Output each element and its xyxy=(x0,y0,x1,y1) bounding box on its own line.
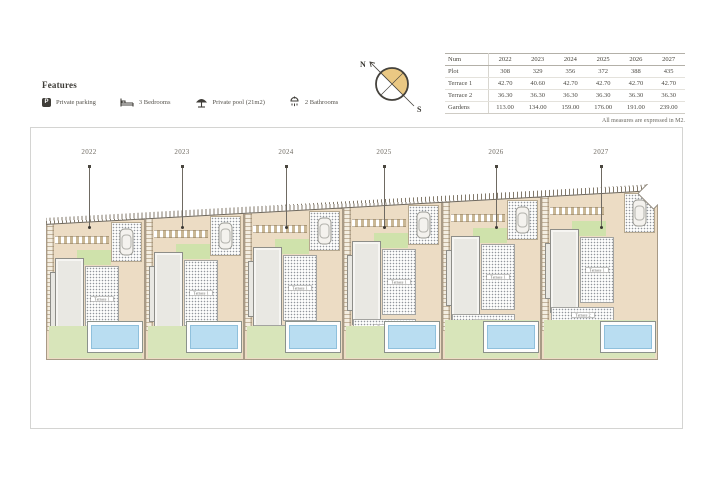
house-footprint xyxy=(352,241,381,325)
units-note: All measures are expressed in M2. xyxy=(445,118,685,124)
parking-pad xyxy=(408,205,439,245)
terrace-1-area: Terrace 1 xyxy=(184,260,218,326)
value-cell: 113.00 xyxy=(489,102,522,114)
pool xyxy=(483,321,539,353)
value-cell: 191.00 xyxy=(620,102,653,114)
plot-2025: Terrace 1Terrace 2 xyxy=(343,202,442,360)
pool xyxy=(384,321,440,353)
value-cell: 40.60 xyxy=(521,78,554,90)
value-cell: 176.00 xyxy=(587,102,620,114)
row-label-cell: Gardens xyxy=(445,102,489,114)
pergola-strip xyxy=(550,207,604,215)
value-cell: 372 xyxy=(587,66,620,78)
parking-pad xyxy=(210,216,241,256)
pergola-strip xyxy=(55,236,109,244)
bathroom-icon xyxy=(289,96,300,108)
leader-line xyxy=(182,168,183,227)
leader-dot xyxy=(285,226,288,229)
terrace-1-label: Terrace 1 xyxy=(190,290,213,296)
leader-line xyxy=(496,168,497,227)
value-cell: 42.70 xyxy=(652,78,685,90)
pergola-strip xyxy=(154,230,208,238)
plot-2023: Terrace 1Terrace 2 xyxy=(145,213,244,360)
house-footprint xyxy=(253,247,282,331)
leader-dot xyxy=(600,226,603,229)
pool xyxy=(186,321,242,353)
pool xyxy=(87,321,143,353)
site-plan-band: Terrace 1Terrace 2Terrace 1Terrace 2Terr… xyxy=(46,184,658,366)
plot-label: 2023 xyxy=(162,148,202,156)
value-cell: 388 xyxy=(620,66,653,78)
pergola-strip xyxy=(253,225,307,233)
table-row: Terrace 236.3036.3036.3036.3036.3036.30 xyxy=(445,90,685,102)
leader-line xyxy=(601,168,602,227)
pool-water xyxy=(91,325,139,349)
drawing-frame: Terrace 1Terrace 2Terrace 1Terrace 2Terr… xyxy=(30,127,683,429)
plot-label: 2026 xyxy=(476,148,516,156)
value-cell: 134.00 xyxy=(521,102,554,114)
pool-umbrella-icon xyxy=(195,97,208,108)
value-cell: 239.00 xyxy=(652,102,685,114)
value-cell: 435 xyxy=(652,66,685,78)
car-icon xyxy=(632,199,647,227)
value-cell: 36.30 xyxy=(489,90,522,102)
pool xyxy=(285,321,341,353)
table-row: Plot308329356372388435 xyxy=(445,66,685,78)
value-cell: 36.30 xyxy=(620,90,653,102)
table-header-num: Num xyxy=(445,54,489,66)
site-plan-page: Features PPrivate parking3 BedroomsPriva… xyxy=(0,0,705,498)
legend-label: 2 Bathrooms xyxy=(305,99,338,106)
features-heading: Features xyxy=(42,80,77,90)
table-row: Gardens113.00134.00159.00176.00191.00239… xyxy=(445,102,685,114)
value-cell: 308 xyxy=(489,66,522,78)
plot-2026: Terrace 1Terrace 2 xyxy=(442,197,541,361)
pool-water xyxy=(190,325,238,349)
plot-2022: Terrace 1Terrace 2 xyxy=(46,219,145,361)
car-icon xyxy=(317,217,332,245)
legend-label: Private pool (21m2) xyxy=(213,99,265,106)
table-header-year: 2026 xyxy=(620,54,653,66)
bed-icon xyxy=(120,97,134,107)
value-cell: 36.30 xyxy=(652,90,685,102)
house-footprint xyxy=(451,236,480,320)
leader-dot xyxy=(181,226,184,229)
measurements-table-head: Num202220232024202520262027 xyxy=(445,54,685,66)
value-cell: 159.00 xyxy=(554,102,587,114)
pool-water xyxy=(289,325,337,349)
value-cell: 42.70 xyxy=(489,78,522,90)
measurements-table-body: Plot308329356372388435Terrace 142.7040.6… xyxy=(445,66,685,114)
value-cell: 42.70 xyxy=(554,78,587,90)
value-cell: 42.70 xyxy=(620,78,653,90)
leader-line xyxy=(89,168,90,227)
pool-water xyxy=(604,325,652,349)
table-header-year: 2025 xyxy=(587,54,620,66)
plot-label: 2025 xyxy=(364,148,404,156)
terrace-1-area: Terrace 1 xyxy=(580,237,614,303)
plot-label: 2022 xyxy=(69,148,109,156)
table-row: Terrace 142.7040.6042.7042.7042.7042.70 xyxy=(445,78,685,90)
legend-item: PPrivate parking xyxy=(42,98,96,107)
value-cell: 356 xyxy=(554,66,587,78)
row-label-cell: Plot xyxy=(445,66,489,78)
table-header-year: 2024 xyxy=(554,54,587,66)
compass-south-label: S xyxy=(417,105,422,114)
terrace-1-label: Terrace 1 xyxy=(487,274,510,280)
pool xyxy=(600,321,656,353)
compass-rose: N S xyxy=(355,54,429,123)
car-icon xyxy=(416,211,431,239)
plot-label: 2027 xyxy=(581,148,621,156)
pergola-strip xyxy=(352,219,406,227)
parking-pad xyxy=(309,211,340,251)
row-label-cell: Terrace 2 xyxy=(445,90,489,102)
parking-icon: P xyxy=(42,98,51,107)
leader-dot xyxy=(495,226,498,229)
plot-2027: Terrace 1Terrace 2 xyxy=(541,190,658,360)
legend-item: 2 Bathrooms xyxy=(289,96,338,108)
pool-water xyxy=(388,325,436,349)
terrace-1-label: Terrace 1 xyxy=(289,285,312,291)
plot-label: 2024 xyxy=(266,148,306,156)
measurements-table: Num202220232024202520262027 Plot30832935… xyxy=(445,53,685,114)
parking-pad xyxy=(111,222,142,262)
value-cell: 36.30 xyxy=(521,90,554,102)
pool-water xyxy=(487,325,535,349)
features-legend: PPrivate parking3 BedroomsPrivate pool (… xyxy=(42,96,338,108)
house-footprint xyxy=(154,252,183,336)
value-cell: 329 xyxy=(521,66,554,78)
row-label-cell: Terrace 1 xyxy=(445,78,489,90)
plot-2024: Terrace 1Terrace 2 xyxy=(244,208,343,361)
parking-pad xyxy=(507,200,538,240)
legend-label: 3 Bedrooms xyxy=(139,99,171,106)
legend-item: Private pool (21m2) xyxy=(195,97,265,108)
terrace-1-label: Terrace 1 xyxy=(586,267,609,273)
leader-dot xyxy=(88,226,91,229)
terrace-1-area: Terrace 1 xyxy=(283,255,317,321)
leader-dot xyxy=(383,226,386,229)
terrace-1-label: Terrace 1 xyxy=(388,279,411,285)
value-cell: 42.70 xyxy=(587,78,620,90)
house-footprint xyxy=(550,229,579,313)
table-header-year: 2027 xyxy=(652,54,685,66)
value-cell: 36.30 xyxy=(587,90,620,102)
measurements-panel: Num202220232024202520262027 Plot30832935… xyxy=(445,53,685,124)
leader-line xyxy=(286,168,287,227)
legend-label: Private parking xyxy=(56,99,96,106)
terrace-2-label: Terrace 2 xyxy=(571,312,594,318)
terrace-1-label: Terrace 1 xyxy=(91,296,114,302)
leader-line xyxy=(384,168,385,227)
legend-item: 3 Bedrooms xyxy=(120,97,171,107)
terrace-1-area: Terrace 1 xyxy=(382,249,416,315)
features-section: Features xyxy=(42,80,77,90)
terrace-1-area: Terrace 1 xyxy=(481,244,515,310)
compass-north-label: N xyxy=(360,60,366,69)
table-header-year: 2022 xyxy=(489,54,522,66)
car-icon xyxy=(218,222,233,250)
car-icon xyxy=(515,206,530,234)
car-icon xyxy=(119,228,134,256)
value-cell: 36.30 xyxy=(554,90,587,102)
table-header-year: 2023 xyxy=(521,54,554,66)
